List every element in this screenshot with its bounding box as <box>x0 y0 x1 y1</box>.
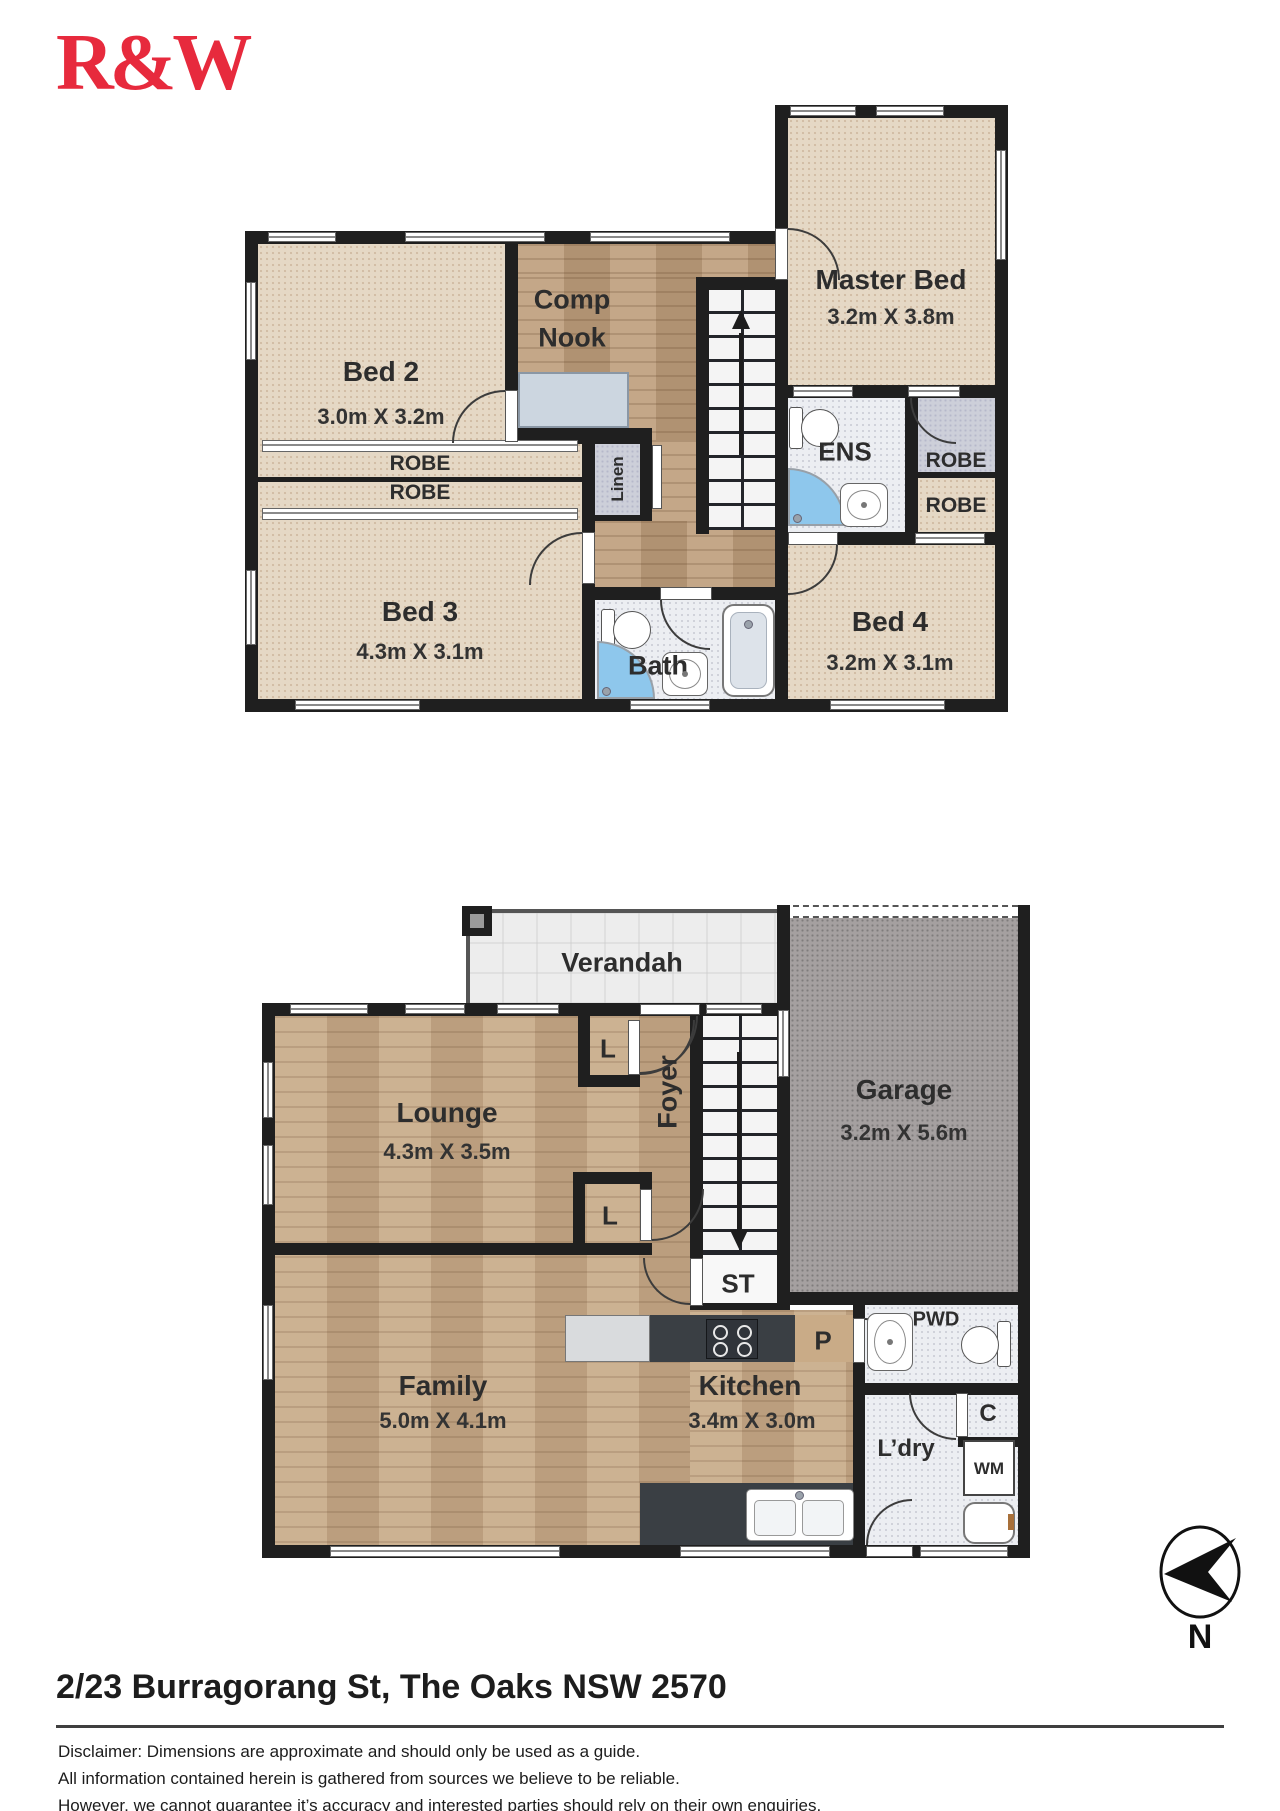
window <box>790 106 856 116</box>
label-linen-lounge: L <box>602 1201 618 1232</box>
sink-bowl <box>802 1500 844 1536</box>
north-compass-icon <box>1158 1524 1242 1620</box>
lounge-family-floor <box>275 1016 690 1545</box>
label-laundry: L’dry <box>877 1435 934 1463</box>
room-label-verandah: Verandah <box>561 948 683 979</box>
toilet-tank <box>997 1321 1011 1367</box>
stair-up-arrow-icon <box>732 310 750 329</box>
door-leaf <box>775 228 788 280</box>
window <box>876 106 944 116</box>
wall <box>595 515 652 521</box>
label-robe-right-upper: ROBE <box>926 449 987 473</box>
verandah-edge <box>466 909 777 913</box>
label-cupboard: C <box>979 1400 996 1428</box>
wall <box>775 280 788 699</box>
sink-tap <box>795 1491 804 1500</box>
shower-head <box>793 514 802 523</box>
door-leaf <box>582 532 595 584</box>
room-dims-garage: 3.2m X 5.6m <box>840 1120 967 1146</box>
robe-slider-door <box>915 533 985 544</box>
window <box>680 1546 830 1557</box>
disclaimer-line-2: All information contained herein is gath… <box>58 1769 680 1789</box>
wall <box>1018 905 1030 1558</box>
wall <box>775 105 788 228</box>
wall <box>275 1243 573 1255</box>
wall <box>853 1363 865 1545</box>
window <box>246 282 256 360</box>
room-label-foyer: Foyer <box>653 1055 684 1129</box>
room-label-kitchen: Kitchen <box>699 1370 802 1402</box>
label-storage: ST <box>721 1269 754 1300</box>
toilet-bowl <box>961 1326 999 1364</box>
toilet-bowl <box>613 611 651 649</box>
stair-arrow-shaft <box>739 333 743 455</box>
label-pantry: P <box>814 1326 831 1357</box>
label-robe-bed2: ROBE <box>390 452 451 476</box>
window <box>263 1305 273 1380</box>
basin <box>867 1313 913 1371</box>
label-washing-machine: WM <box>974 1459 1004 1479</box>
door-leaf <box>690 1258 703 1306</box>
room-label-ens: ENS <box>818 437 871 468</box>
room-dims-lounge: 4.3m X 3.5m <box>383 1139 510 1165</box>
robe-slider-door <box>262 440 578 452</box>
verandah-post-core <box>470 914 484 928</box>
window <box>630 700 710 710</box>
door-leaf <box>866 1546 913 1557</box>
room-label-lounge: Lounge <box>396 1097 497 1129</box>
door-leaf <box>788 532 838 545</box>
upper-hall-floor <box>518 244 775 277</box>
room-dims-master-bed: 3.2m X 3.8m <box>827 304 954 330</box>
door-leaf <box>640 1189 652 1241</box>
window <box>263 1062 273 1118</box>
room-label-bed4: Bed 4 <box>852 606 928 638</box>
shower-head <box>602 687 611 696</box>
window <box>263 1145 273 1205</box>
comp-nook-desk <box>518 372 629 428</box>
window <box>778 1010 789 1077</box>
floorplan-page: R&W <box>0 0 1280 1811</box>
divider-line <box>56 1725 1224 1728</box>
ens-door <box>793 386 853 397</box>
window <box>706 1004 762 1014</box>
window <box>295 700 420 710</box>
room-label-family: Family <box>399 1370 488 1402</box>
disclaimer-line-3: However, we cannot guarantee it’s accura… <box>58 1796 821 1811</box>
stair-down-arrow-icon <box>730 1230 748 1249</box>
window <box>996 150 1006 260</box>
entry-door-leaf <box>640 1004 700 1015</box>
window <box>920 1546 1008 1557</box>
room-dims-bed4: 3.2m X 3.1m <box>826 650 953 676</box>
room-label-master-bed: Master Bed <box>816 264 967 296</box>
stove <box>706 1319 758 1359</box>
room-label-bed3: Bed 3 <box>382 596 458 628</box>
wall <box>573 1243 652 1255</box>
disclaimer-line-1: Disclaimer: Dimensions are approximate a… <box>58 1742 640 1762</box>
rw-logo: R&W <box>56 18 248 109</box>
label-robe-bed3: ROBE <box>390 481 451 505</box>
room-label-comp: Comp <box>534 285 611 316</box>
fridge <box>565 1315 650 1362</box>
room-dims-family: 5.0m X 4.1m <box>379 1408 506 1434</box>
door-leaf <box>853 1318 865 1363</box>
room-label-nook: Nook <box>538 323 606 354</box>
room-dims-bed3: 4.3m X 3.1m <box>356 639 483 665</box>
upper-landing-floor <box>595 521 775 587</box>
north-label: N <box>1188 1618 1213 1657</box>
wall <box>703 1303 777 1310</box>
laundry-tap <box>1008 1514 1014 1530</box>
door-leaf <box>505 390 518 442</box>
window <box>830 700 945 710</box>
basin <box>840 483 888 527</box>
window <box>497 1004 559 1014</box>
window <box>246 570 256 645</box>
address-title: 2/23 Burragorang St, The Oaks NSW 2570 <box>56 1668 727 1707</box>
label-linen: Linen <box>608 456 628 501</box>
wall <box>582 584 595 699</box>
door-leaf <box>660 587 712 600</box>
wall <box>582 440 595 532</box>
window <box>405 1004 465 1014</box>
wall <box>578 1075 640 1087</box>
garage-door <box>793 905 1018 918</box>
wall <box>712 587 775 600</box>
wall <box>640 438 652 521</box>
wall <box>777 905 790 1310</box>
wall <box>505 244 518 390</box>
room-label-bed2: Bed 2 <box>343 356 419 388</box>
bathtub-drain <box>744 620 753 629</box>
wall <box>696 277 709 534</box>
wall <box>582 587 660 600</box>
robe-door <box>908 386 960 397</box>
door-leaf <box>956 1393 968 1437</box>
linen-door-leaf <box>652 445 662 509</box>
label-robe-right-lower: ROBE <box>926 494 987 518</box>
robe-slider-door <box>262 508 578 520</box>
window <box>405 232 545 242</box>
window <box>268 232 336 242</box>
sliding-door <box>330 1546 560 1557</box>
room-dims-bed2: 3.0m X 3.2m <box>317 404 444 430</box>
label-linen-foyer: L <box>600 1034 616 1065</box>
sink-bowl <box>754 1500 796 1536</box>
wall <box>853 1305 865 1318</box>
label-powder: PWD <box>913 1309 960 1332</box>
door-leaf <box>628 1020 640 1075</box>
wall <box>790 1292 1018 1305</box>
wall <box>640 1172 652 1189</box>
stair-arrow-shaft <box>737 1052 741 1234</box>
window <box>290 1004 368 1014</box>
room-dims-kitchen: 3.4m X 3.0m <box>688 1408 815 1434</box>
room-label-bath: Bath <box>628 651 688 682</box>
room-label-garage: Garage <box>856 1074 953 1106</box>
stair-landing-edge <box>703 1250 777 1255</box>
window <box>590 232 730 242</box>
